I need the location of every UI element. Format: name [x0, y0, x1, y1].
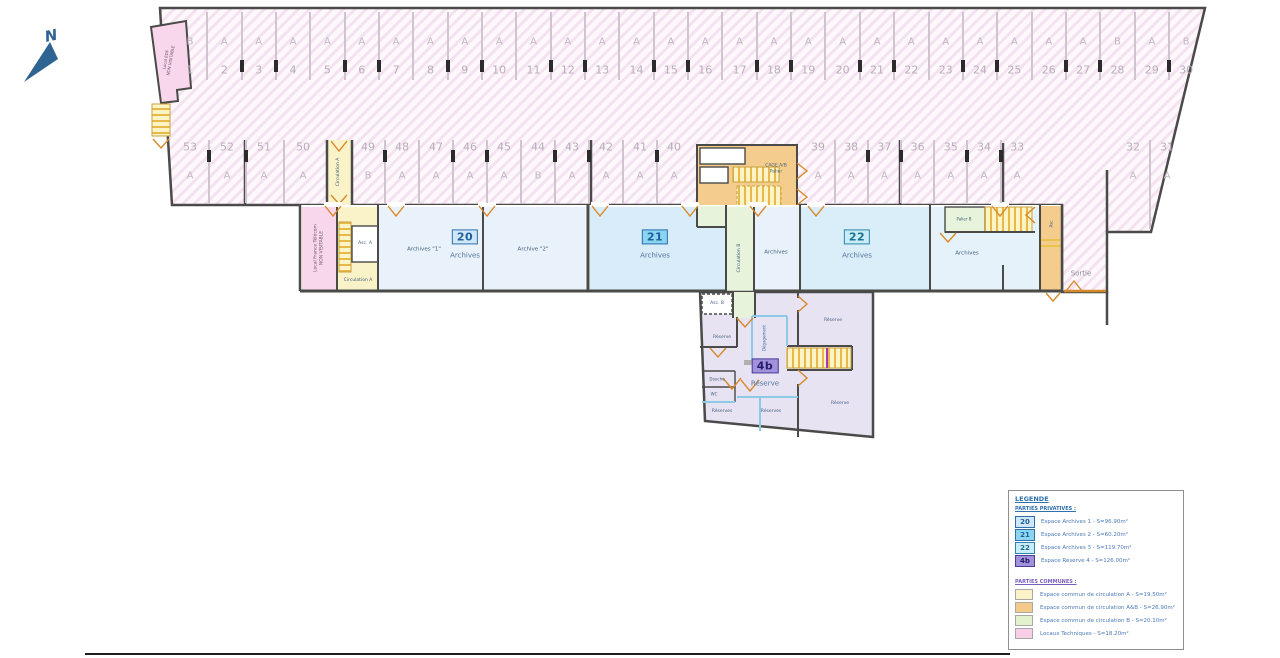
parking-space-letter: B [365, 171, 372, 182]
parking-space-number: 40 [667, 141, 681, 154]
parking-space-letter: A [603, 171, 610, 182]
parking-space-number: 38 [844, 141, 858, 154]
parking-space-letter: A [736, 37, 743, 48]
parking-space-letter: A [671, 171, 678, 182]
douche-label: Douche [709, 377, 724, 382]
wheel-stop [892, 60, 896, 72]
parking-space-number: 8 [427, 64, 434, 77]
legend-title: LEGENDE [1015, 495, 1177, 503]
parking-space-number: 14 [630, 64, 644, 77]
parking-space-letter: A [848, 171, 855, 182]
legend-item: Espace commun de circulation B - S=20.10… [1015, 614, 1177, 627]
parking-space-letter: A [914, 171, 921, 182]
parking-space-letter: A [1014, 171, 1021, 182]
parking-space-letter: A [942, 37, 949, 48]
parking-space-letter: A [496, 37, 503, 48]
parking-space-letter: A [290, 37, 297, 48]
legend-item: Espace commun de circulation A - S=19.50… [1015, 588, 1177, 601]
wheel-stop [995, 60, 999, 72]
reserve-section [700, 292, 873, 437]
parking-space-number: 41 [633, 141, 647, 154]
parking-space-letter: A [300, 171, 307, 182]
parking-divider [824, 12, 826, 80]
wheel-stop [244, 150, 248, 162]
archives-1-label: Archives "1" [407, 247, 441, 254]
parking-divider [309, 12, 311, 80]
parking-space-number: 33 [1010, 141, 1024, 154]
parking-space-letter: A [874, 37, 881, 48]
parking-space-number: 43 [565, 141, 579, 154]
degagement-label: Dégagement [762, 325, 767, 351]
parking-space-number: 27 [1076, 64, 1090, 77]
parking-space-number: 21 [870, 64, 884, 77]
lot-4b-name: Réserve [751, 380, 779, 389]
parking-space-letter: B [1183, 37, 1190, 48]
parking-space-number: 26 [1042, 64, 1056, 77]
parking-space-letter: B [187, 37, 194, 48]
parking-space-letter: A [501, 171, 508, 182]
parking-space-number: 3 [255, 64, 262, 77]
parking-space-letter: A [1080, 37, 1087, 48]
wheel-stop [899, 150, 903, 162]
parking-space-number: 10 [492, 64, 506, 77]
parking-space-number: 5 [324, 64, 331, 77]
wheel-stop [451, 150, 455, 162]
parking-space-number: 47 [429, 141, 443, 154]
legend-item: Locaux Techniques - S=18.20m² [1015, 627, 1177, 640]
parking-space-letter: A [427, 37, 434, 48]
parking-space-letter: A [1045, 37, 1052, 48]
parking-space-letter: A [221, 37, 228, 48]
legend-item: Espace commun de circulation A&B - S=26.… [1015, 601, 1177, 614]
circulation-a-vertical-label: Circulation A [336, 158, 342, 187]
lot-badge-21: 21 [642, 229, 668, 244]
parking-divider [1031, 12, 1033, 80]
wheel-stop [446, 60, 450, 72]
lot-21-name: Archives [640, 252, 670, 261]
legend-item: 4b Espace Réserve 4 - S=126.00m² [1015, 554, 1177, 567]
parking-space-number: 24 [973, 64, 987, 77]
parking-space-number: 36 [911, 141, 925, 154]
parking-space-letter: A [530, 37, 537, 48]
parking-space-number: 44 [531, 141, 545, 154]
legend-private-heading: PARTIES PRIVATIVES : [1015, 506, 1177, 512]
parking-space-letter: A [947, 171, 954, 182]
parking-space-letter: A [805, 37, 812, 48]
legend-item: 21 Espace Archives 2 - S=60.20m² [1015, 528, 1177, 541]
parking-space-letter: A [1148, 37, 1155, 48]
archives-right-label: Archives [955, 251, 978, 258]
parking-space-letter: A [977, 37, 984, 48]
parking-space-number: 34 [977, 141, 991, 154]
parking-divider [933, 140, 935, 203]
wheel-stop [866, 150, 870, 162]
parking-space-number: 9 [461, 64, 468, 77]
wc-label: WC [711, 392, 718, 397]
wheel-stop [240, 60, 244, 72]
parking-space-letter: B [535, 171, 542, 182]
parking-divider [721, 12, 723, 80]
parking-space-number: 17 [733, 64, 747, 77]
svg-text:N: N [43, 26, 59, 46]
legend-swatch-21: 21 [1015, 529, 1035, 541]
parking-space-number: 16 [698, 64, 712, 77]
parking-space-letter: A [224, 171, 231, 182]
reserves-bottommid-label: Réserves [761, 409, 781, 415]
wheel-stop [686, 60, 690, 72]
parking-space-letter: A [433, 171, 440, 182]
local-ft-label: Local France TélécomNON VISITABLE [313, 224, 324, 272]
parking-space-letter: A [908, 37, 915, 48]
parking-space-number: 28 [1110, 64, 1124, 77]
wheel-stop [1167, 60, 1171, 72]
wheel-stop [755, 60, 759, 72]
parking-divider [618, 12, 620, 80]
parking-space-number: 52 [220, 141, 234, 154]
page-bottom-rule [85, 653, 1010, 655]
wheel-stop [587, 150, 591, 162]
parking-space-letter: A [358, 37, 365, 48]
parking-space-letter: A [461, 37, 468, 48]
asc-a-label: Asc. A [358, 241, 372, 247]
parking-space-number: 2 [221, 64, 228, 77]
parking-space-number: 45 [497, 141, 511, 154]
parking-divider [418, 140, 420, 203]
lot-badge-4b: 4b [752, 358, 779, 373]
wheel-stop [377, 60, 381, 72]
parking-divider [1149, 140, 1151, 229]
lot-22-name: Archives [842, 252, 872, 261]
circulation-a-label: Circulation A [344, 278, 373, 284]
parking-space-number: 42 [599, 141, 613, 154]
wheel-stop [789, 60, 793, 72]
parking-space-number: 29 [1145, 64, 1159, 77]
parking-divider [206, 12, 208, 80]
parking-space-letter: A [637, 171, 644, 182]
parking-space-number: 11 [527, 64, 541, 77]
parking-space-letter: A [839, 37, 846, 48]
parking-space-letter: A [599, 37, 606, 48]
reserve-topleft-label: Réserve [713, 335, 731, 341]
wheel-stop [343, 60, 347, 72]
circulation-b-label: Circulation B [737, 244, 743, 273]
legend-swatch-4b: 4b [1015, 555, 1035, 567]
wheel-stop [485, 150, 489, 162]
parking-space-number: 15 [664, 64, 678, 77]
parking-space-letter: A [1164, 171, 1171, 182]
wheel-stop [965, 150, 969, 162]
parking-divider [1134, 12, 1136, 80]
parking-space-number: 22 [904, 64, 918, 77]
lot-badge-20: 20 [452, 229, 478, 244]
parking-space-letter: A [564, 37, 571, 48]
legend-swatch-22: 22 [1015, 542, 1035, 554]
parking-space-number: 53 [183, 141, 197, 154]
parking-divider [283, 140, 285, 203]
reserve-topright-label: Réserve [824, 318, 842, 324]
parking-space-letter: A [667, 37, 674, 48]
lot-20-name: Archives [450, 252, 480, 261]
cage-ab-stair-block [697, 145, 807, 208]
left-exterior-stairs [152, 104, 170, 148]
parking-space-number: 49 [361, 141, 375, 154]
parking-space-letter: A [569, 171, 576, 182]
parking-space-number: 50 [296, 141, 310, 154]
wheel-stop [549, 60, 553, 72]
parking-space-number: 32 [1126, 141, 1140, 154]
parking-space-number: 31 [1160, 141, 1174, 154]
wheel-stop [961, 60, 965, 72]
wheel-stop [583, 60, 587, 72]
parking-space-letter: A [393, 37, 400, 48]
parking-divider [928, 12, 930, 80]
parking-space-number: 18 [767, 64, 781, 77]
legend-swatch-20: 20 [1015, 516, 1035, 528]
parking-space-number: 35 [944, 141, 958, 154]
parking-space-letter: A [324, 37, 331, 48]
lot-badge-22: 22 [844, 229, 870, 244]
parking-divider [412, 12, 414, 80]
wheel-stop [480, 60, 484, 72]
parking-divider [515, 12, 517, 80]
parking-space-letter: A [815, 171, 822, 182]
reserve-bottomright-label: Réserve [831, 401, 849, 407]
legend-swatch-circulation-ab [1015, 602, 1033, 613]
parking-space-number: 13 [595, 64, 609, 77]
parking-space-letter: A [187, 171, 194, 182]
parking-divider [834, 140, 836, 203]
parking-space-number: 46 [463, 141, 477, 154]
parking-space-letter: A [467, 171, 474, 182]
parking-space-number: 6 [358, 64, 365, 77]
legend-swatch-circulation-a [1015, 589, 1033, 600]
legend-swatch-circulation-b [1015, 615, 1033, 626]
parking-space-number: 19 [801, 64, 815, 77]
archive-2-label: Archive "2" [518, 247, 549, 254]
parking-space-letter: A [261, 171, 268, 182]
wheel-stop [383, 150, 387, 162]
legend-item: 22 Espace Archives 3 - S=119.70m² [1015, 541, 1177, 554]
parking-space-number: 4 [290, 64, 297, 77]
north-arrow-icon: N [24, 26, 60, 82]
wheel-stop [553, 150, 557, 162]
parking-space-letter: B [1114, 37, 1121, 48]
parking-divider [520, 140, 522, 203]
parking-space-number: 20 [836, 64, 850, 77]
parking-space-number: 12 [561, 64, 575, 77]
parking-space-letter: A [1011, 37, 1018, 48]
parking-space-letter: A [633, 37, 640, 48]
parking-space-letter: A [881, 171, 888, 182]
legend-item: 20 Espace Archives 1 - S=96.90m² [1015, 515, 1177, 528]
wheel-stop [858, 60, 862, 72]
cage-ab-label: CAGE A/BPalier [765, 164, 787, 177]
parking-space-number: 7 [393, 64, 400, 77]
parking-space-letter: A [1130, 171, 1137, 182]
palier-b-label: Palier B [956, 217, 971, 222]
parking-space-number: 23 [939, 64, 953, 77]
parking-space-letter: A [981, 171, 988, 182]
asc-b-label: Asc. B [710, 301, 724, 307]
parking-space-number: 39 [811, 141, 825, 154]
wheel-stop [207, 150, 211, 162]
legend: LEGENDE PARTIES PRIVATIVES : 20 Espace A… [1008, 490, 1184, 650]
archives-small-label: Archives [764, 250, 787, 257]
asc-label: Asc [1049, 220, 1054, 227]
parking-space-letter: A [255, 37, 262, 48]
wheel-stop [655, 150, 659, 162]
reserves-bottomleft-label: Réserves [712, 409, 732, 415]
parking-space-letter: A [771, 37, 778, 48]
parking-space-number: 37 [877, 141, 891, 154]
parking-space-number: 25 [1007, 64, 1021, 77]
parking-space-number: 51 [257, 141, 271, 154]
parking-space-number: 30 [1179, 64, 1193, 77]
parking-space-letter: A [702, 37, 709, 48]
parking-space-number: 1 [187, 64, 194, 77]
wheel-stop [1098, 60, 1102, 72]
parking-space-number: 48 [395, 141, 409, 154]
legend-swatch-locaux-techniques [1015, 628, 1033, 639]
parking-divider [622, 140, 624, 203]
wheel-stop [274, 60, 278, 72]
floor-plan: N [0, 0, 1280, 658]
parking-space-letter: A [399, 171, 406, 182]
wheel-stop [1064, 60, 1068, 72]
sortie-label: Sortie [1071, 270, 1092, 279]
legend-common-heading: PARTIES COMMUNES : [1015, 579, 1177, 585]
wheel-stop [652, 60, 656, 72]
wheel-stop [999, 150, 1003, 162]
